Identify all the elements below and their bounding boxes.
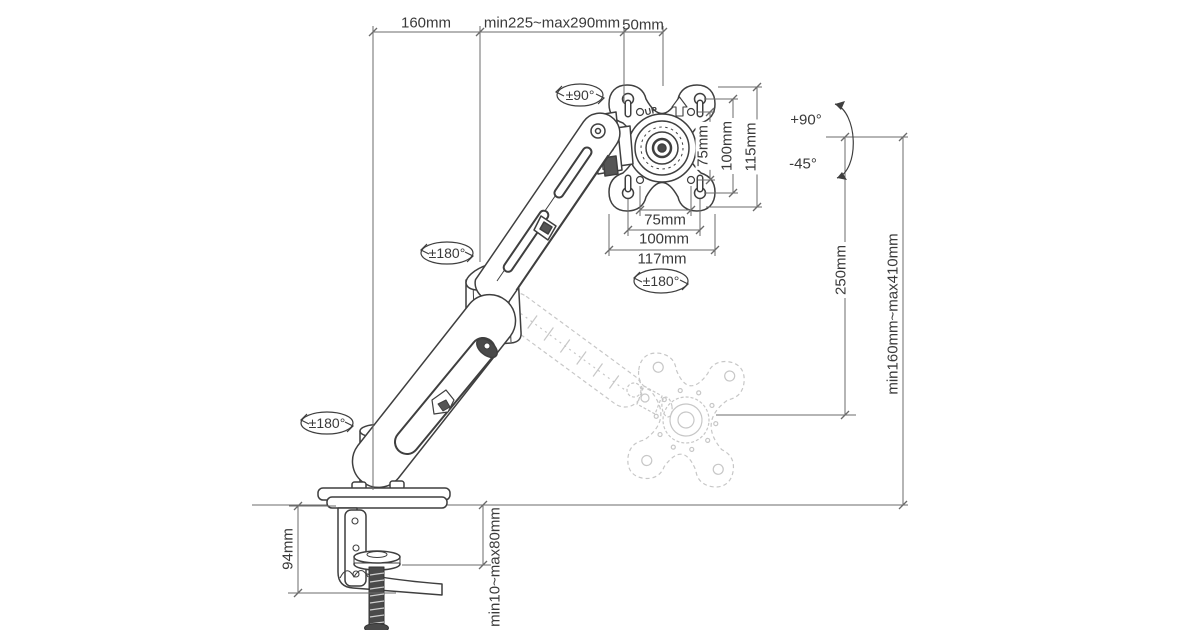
tilt-arrow-up xyxy=(835,101,845,110)
dim-label-vesa-h100: 100mm xyxy=(639,232,689,247)
dim-label-vesa-v100: 100mm xyxy=(720,118,735,174)
badge-vesa-rotation: ±180° xyxy=(643,274,680,288)
upper-arm xyxy=(475,113,620,303)
dim-label-reach: min225~max290mm xyxy=(484,16,620,31)
dim-label-plate-width: 117mm xyxy=(638,252,687,267)
dimension-drawing: 160mm min225~max290mm 50mm 75mm 100mm 11… xyxy=(0,0,1200,630)
dim-label-vesa-v75: 75mm xyxy=(696,122,711,170)
ghost-lowered-arm xyxy=(499,293,746,489)
lower-arm xyxy=(352,295,515,488)
badge-elbow-swivel: ±180° xyxy=(429,246,466,260)
label-tilt-up: +90° xyxy=(790,113,821,128)
dim-label-clamp-height: 94mm xyxy=(281,528,296,570)
dim-label-plate-height: 115mm xyxy=(744,120,759,175)
monitor-arm-diagram xyxy=(0,0,1200,630)
hub-center xyxy=(658,144,666,152)
label-tilt-down: -45° xyxy=(789,157,817,172)
desk-clamp xyxy=(338,508,442,630)
badge-head-swivel: ±90° xyxy=(566,88,595,102)
tilt-arc xyxy=(835,104,853,178)
dim-label-desk-thickness: min10~max80mm xyxy=(488,507,503,627)
dim-label-height-range: 250mm xyxy=(834,242,849,298)
dim-label-vesa-h75: 75mm xyxy=(644,213,686,228)
ghost-vesa-plate xyxy=(626,351,747,489)
clamp-screw xyxy=(369,567,384,628)
monitor-arm xyxy=(318,85,715,630)
dim-label-head: 50mm xyxy=(622,18,664,33)
dim-label-height-minmax: min160mm~max410mm xyxy=(886,230,901,397)
dim-label-offset: 160mm xyxy=(401,16,451,31)
badge-base-swivel: ±180° xyxy=(309,416,346,430)
